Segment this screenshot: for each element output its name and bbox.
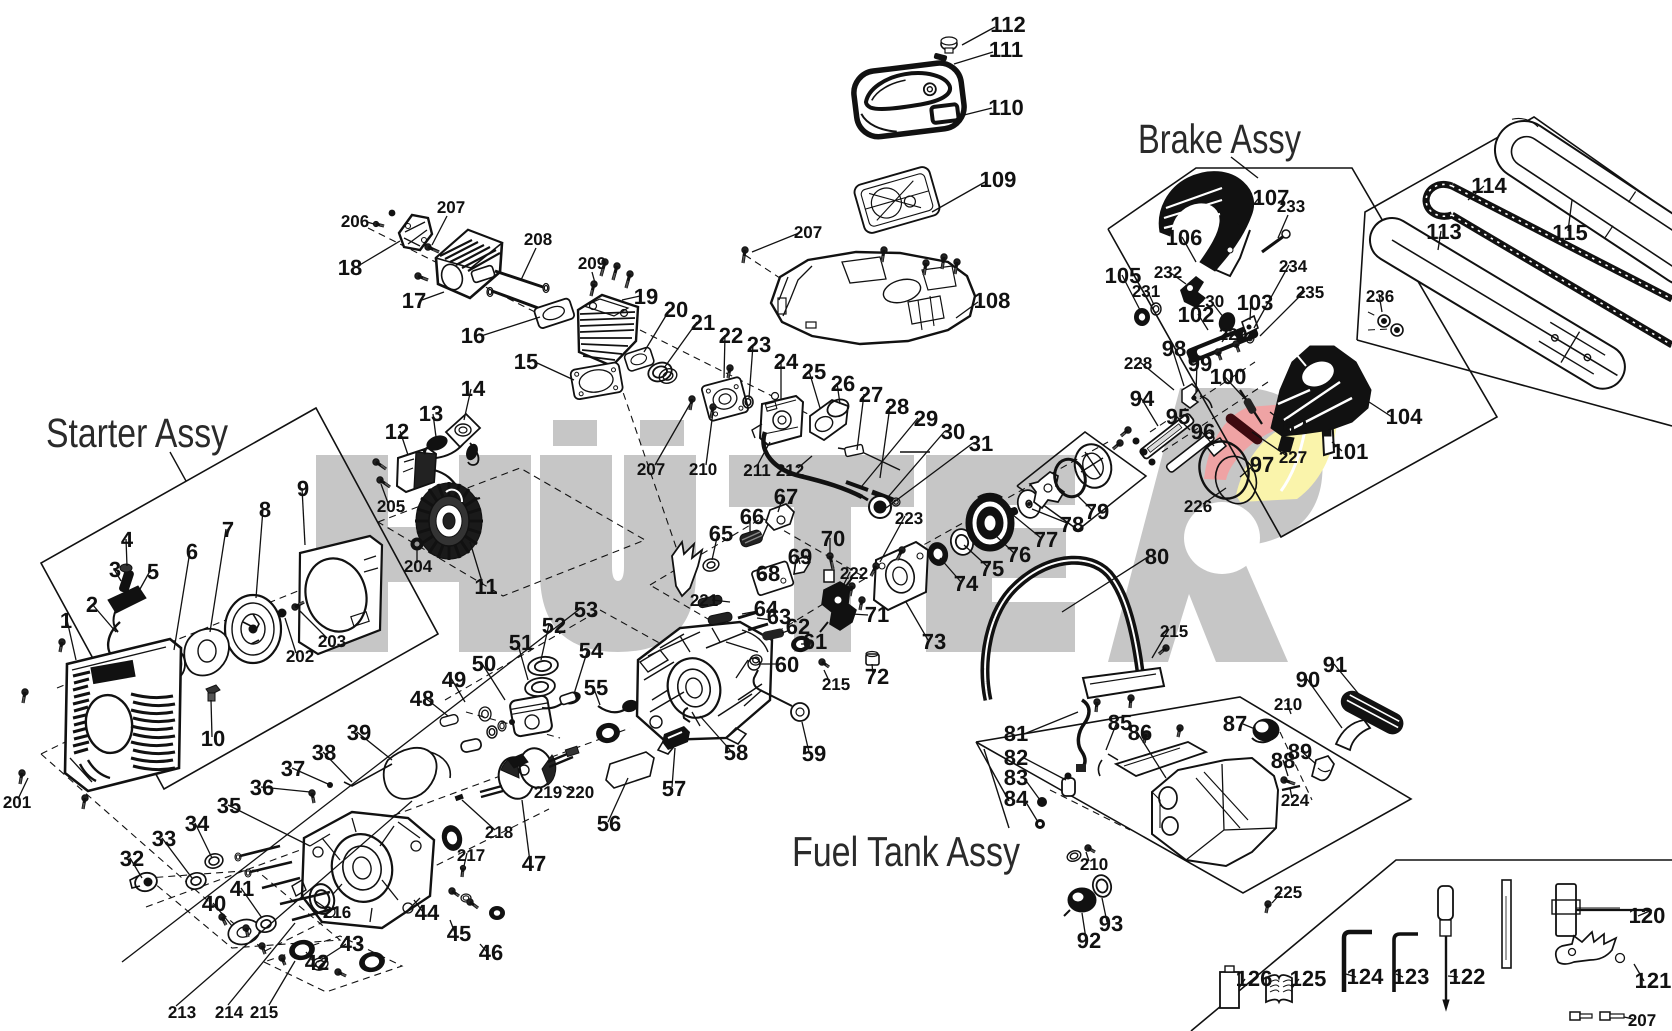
svg-text:121: 121 bbox=[1635, 968, 1672, 993]
svg-text:106: 106 bbox=[1166, 225, 1203, 250]
svg-text:70: 70 bbox=[821, 526, 845, 551]
svg-text:1: 1 bbox=[60, 608, 72, 633]
svg-text:40: 40 bbox=[202, 891, 226, 916]
svg-text:23: 23 bbox=[747, 332, 771, 357]
svg-text:41: 41 bbox=[230, 876, 254, 901]
svg-text:10: 10 bbox=[201, 726, 225, 751]
svg-text:112: 112 bbox=[990, 12, 1026, 37]
svg-text:73: 73 bbox=[922, 629, 946, 654]
svg-text:223: 223 bbox=[895, 509, 923, 528]
svg-text:207: 207 bbox=[1628, 1011, 1656, 1030]
svg-text:52: 52 bbox=[542, 613, 566, 638]
svg-text:17: 17 bbox=[402, 288, 426, 313]
svg-text:231: 231 bbox=[1132, 282, 1160, 301]
svg-text:97: 97 bbox=[1250, 452, 1274, 477]
svg-text:19: 19 bbox=[634, 284, 658, 309]
svg-text:53: 53 bbox=[574, 597, 598, 622]
svg-text:203: 203 bbox=[318, 632, 346, 651]
svg-text:224: 224 bbox=[1281, 791, 1310, 810]
svg-text:89: 89 bbox=[1288, 739, 1312, 764]
svg-text:209: 209 bbox=[578, 254, 606, 273]
svg-text:234: 234 bbox=[1279, 257, 1308, 276]
svg-text:99: 99 bbox=[1188, 351, 1212, 376]
svg-text:33: 33 bbox=[152, 826, 176, 851]
svg-text:7: 7 bbox=[222, 517, 234, 542]
svg-text:225: 225 bbox=[1274, 883, 1302, 902]
svg-text:226: 226 bbox=[1184, 497, 1212, 516]
svg-text:123: 123 bbox=[1393, 964, 1430, 989]
svg-text:43: 43 bbox=[340, 931, 364, 956]
svg-text:8: 8 bbox=[259, 497, 271, 522]
svg-text:66: 66 bbox=[740, 504, 764, 529]
svg-text:75: 75 bbox=[980, 556, 1004, 581]
svg-text:207: 207 bbox=[794, 223, 822, 242]
svg-text:202: 202 bbox=[286, 647, 314, 666]
svg-text:126: 126 bbox=[1236, 966, 1273, 991]
svg-text:236: 236 bbox=[1366, 287, 1394, 306]
svg-text:9: 9 bbox=[297, 476, 309, 501]
svg-text:24: 24 bbox=[774, 349, 799, 374]
svg-text:6: 6 bbox=[186, 539, 198, 564]
svg-text:93: 93 bbox=[1099, 911, 1123, 936]
svg-text:5: 5 bbox=[147, 559, 159, 584]
svg-text:30: 30 bbox=[941, 419, 965, 444]
svg-text:3: 3 bbox=[109, 557, 121, 582]
svg-text:69: 69 bbox=[788, 544, 812, 569]
svg-text:29: 29 bbox=[914, 406, 938, 431]
svg-text:215: 215 bbox=[250, 1003, 278, 1022]
svg-text:Fuel Tank Assy: Fuel Tank Assy bbox=[792, 828, 1020, 875]
svg-text:79: 79 bbox=[1085, 499, 1109, 524]
svg-text:87: 87 bbox=[1223, 711, 1247, 736]
svg-text:55: 55 bbox=[584, 675, 608, 700]
svg-text:81: 81 bbox=[1004, 721, 1028, 746]
svg-text:95: 95 bbox=[1166, 404, 1190, 429]
svg-text:14: 14 bbox=[461, 376, 486, 401]
svg-text:72: 72 bbox=[865, 664, 889, 689]
svg-text:13: 13 bbox=[419, 401, 443, 426]
svg-text:221: 221 bbox=[690, 591, 718, 610]
svg-text:36: 36 bbox=[250, 775, 274, 800]
svg-text:212: 212 bbox=[776, 461, 804, 480]
svg-text:90: 90 bbox=[1296, 667, 1320, 692]
svg-text:220: 220 bbox=[566, 783, 594, 802]
svg-text:51: 51 bbox=[509, 630, 533, 655]
svg-text:208: 208 bbox=[524, 230, 552, 249]
svg-text:92: 92 bbox=[1077, 928, 1101, 953]
svg-text:124: 124 bbox=[1347, 964, 1384, 989]
svg-text:4: 4 bbox=[121, 527, 134, 552]
svg-text:27: 27 bbox=[859, 382, 883, 407]
svg-text:94: 94 bbox=[1130, 386, 1155, 411]
svg-text:58: 58 bbox=[724, 740, 748, 765]
svg-text:125: 125 bbox=[1290, 966, 1327, 991]
svg-text:25: 25 bbox=[802, 359, 826, 384]
svg-text:20: 20 bbox=[664, 297, 688, 322]
svg-text:86: 86 bbox=[1128, 720, 1152, 745]
svg-text:110: 110 bbox=[988, 95, 1024, 120]
svg-text:216: 216 bbox=[323, 903, 351, 922]
svg-text:74: 74 bbox=[954, 571, 979, 596]
svg-text:228: 228 bbox=[1124, 354, 1152, 373]
svg-text:22: 22 bbox=[719, 323, 743, 348]
svg-text:56: 56 bbox=[597, 811, 621, 836]
svg-text:60: 60 bbox=[775, 652, 799, 677]
svg-text:76: 76 bbox=[1007, 542, 1031, 567]
svg-text:114: 114 bbox=[1471, 173, 1507, 198]
svg-text:15: 15 bbox=[514, 349, 538, 374]
svg-text:26: 26 bbox=[831, 371, 855, 396]
svg-text:211: 211 bbox=[743, 461, 770, 480]
svg-text:12: 12 bbox=[385, 419, 409, 444]
svg-text:65: 65 bbox=[709, 521, 733, 546]
svg-text:2: 2 bbox=[86, 592, 98, 617]
svg-text:47: 47 bbox=[522, 851, 546, 876]
svg-text:21: 21 bbox=[691, 310, 715, 335]
svg-text:102: 102 bbox=[1178, 302, 1215, 327]
svg-text:67: 67 bbox=[774, 484, 798, 509]
svg-text:34: 34 bbox=[185, 811, 210, 836]
svg-text:115: 115 bbox=[1552, 220, 1588, 245]
svg-text:57: 57 bbox=[662, 776, 686, 801]
svg-text:45: 45 bbox=[447, 921, 471, 946]
svg-text:96: 96 bbox=[1191, 419, 1215, 444]
svg-text:219: 219 bbox=[534, 783, 562, 802]
svg-text:210: 210 bbox=[1274, 695, 1302, 714]
svg-text:11: 11 bbox=[474, 574, 497, 599]
svg-text:205: 205 bbox=[377, 497, 405, 516]
svg-text:207: 207 bbox=[637, 460, 665, 479]
svg-text:101: 101 bbox=[1332, 439, 1369, 464]
svg-text:Starter Assy: Starter Assy bbox=[46, 410, 228, 456]
svg-text:44: 44 bbox=[415, 900, 440, 925]
svg-text:227: 227 bbox=[1279, 448, 1307, 467]
svg-text:109: 109 bbox=[980, 167, 1017, 192]
svg-text:103: 103 bbox=[1237, 290, 1274, 315]
svg-text:48: 48 bbox=[410, 686, 434, 711]
svg-text:100: 100 bbox=[1210, 364, 1247, 389]
svg-text:213: 213 bbox=[168, 1003, 196, 1022]
svg-text:64: 64 bbox=[754, 596, 779, 621]
svg-text:42: 42 bbox=[305, 950, 329, 975]
svg-text:62: 62 bbox=[1283, 414, 1307, 439]
svg-text:78: 78 bbox=[1060, 512, 1084, 537]
svg-text:104: 104 bbox=[1386, 404, 1423, 429]
svg-text:16: 16 bbox=[461, 323, 485, 348]
svg-text:214: 214 bbox=[215, 1003, 244, 1022]
svg-text:207: 207 bbox=[437, 198, 465, 217]
svg-text:210: 210 bbox=[1080, 855, 1108, 874]
svg-text:18: 18 bbox=[338, 255, 362, 280]
svg-text:204: 204 bbox=[404, 557, 433, 576]
svg-text:32: 32 bbox=[120, 846, 144, 871]
svg-text:215: 215 bbox=[1160, 622, 1188, 641]
svg-text:235: 235 bbox=[1296, 283, 1324, 302]
svg-text:50: 50 bbox=[472, 651, 496, 676]
svg-text:98: 98 bbox=[1162, 336, 1186, 361]
svg-text:111: 111 bbox=[989, 37, 1023, 62]
svg-text:54: 54 bbox=[579, 638, 604, 663]
svg-text:222: 222 bbox=[840, 564, 868, 583]
svg-text:217: 217 bbox=[457, 846, 485, 865]
svg-text:201: 201 bbox=[3, 793, 31, 812]
svg-text:37: 37 bbox=[281, 756, 305, 781]
svg-text:120: 120 bbox=[1629, 903, 1666, 928]
svg-text:77: 77 bbox=[1034, 527, 1058, 552]
svg-text:122: 122 bbox=[1449, 964, 1486, 989]
svg-text:80: 80 bbox=[1145, 544, 1169, 569]
svg-text:232: 232 bbox=[1154, 263, 1182, 282]
svg-text:206: 206 bbox=[341, 212, 369, 231]
svg-text:38: 38 bbox=[312, 740, 336, 765]
svg-text:108: 108 bbox=[974, 288, 1011, 313]
svg-text:113: 113 bbox=[1426, 219, 1462, 244]
svg-text:215: 215 bbox=[822, 675, 850, 694]
svg-text:229: 229 bbox=[1219, 325, 1247, 344]
svg-text:91: 91 bbox=[1323, 652, 1347, 677]
svg-text:31: 31 bbox=[969, 431, 993, 456]
svg-text:35: 35 bbox=[217, 793, 241, 818]
svg-text:49: 49 bbox=[442, 667, 466, 692]
svg-text:218: 218 bbox=[485, 823, 513, 842]
svg-text:59: 59 bbox=[802, 741, 826, 766]
svg-text:71: 71 bbox=[865, 602, 889, 627]
svg-text:46: 46 bbox=[479, 940, 503, 965]
svg-text:233: 233 bbox=[1277, 197, 1305, 216]
svg-text:39: 39 bbox=[347, 720, 371, 745]
svg-text:28: 28 bbox=[885, 394, 909, 419]
svg-text:210: 210 bbox=[689, 460, 717, 479]
svg-text:Brake Assy: Brake Assy bbox=[1138, 116, 1301, 162]
svg-text:84: 84 bbox=[1004, 786, 1029, 811]
svg-text:68: 68 bbox=[756, 561, 780, 586]
